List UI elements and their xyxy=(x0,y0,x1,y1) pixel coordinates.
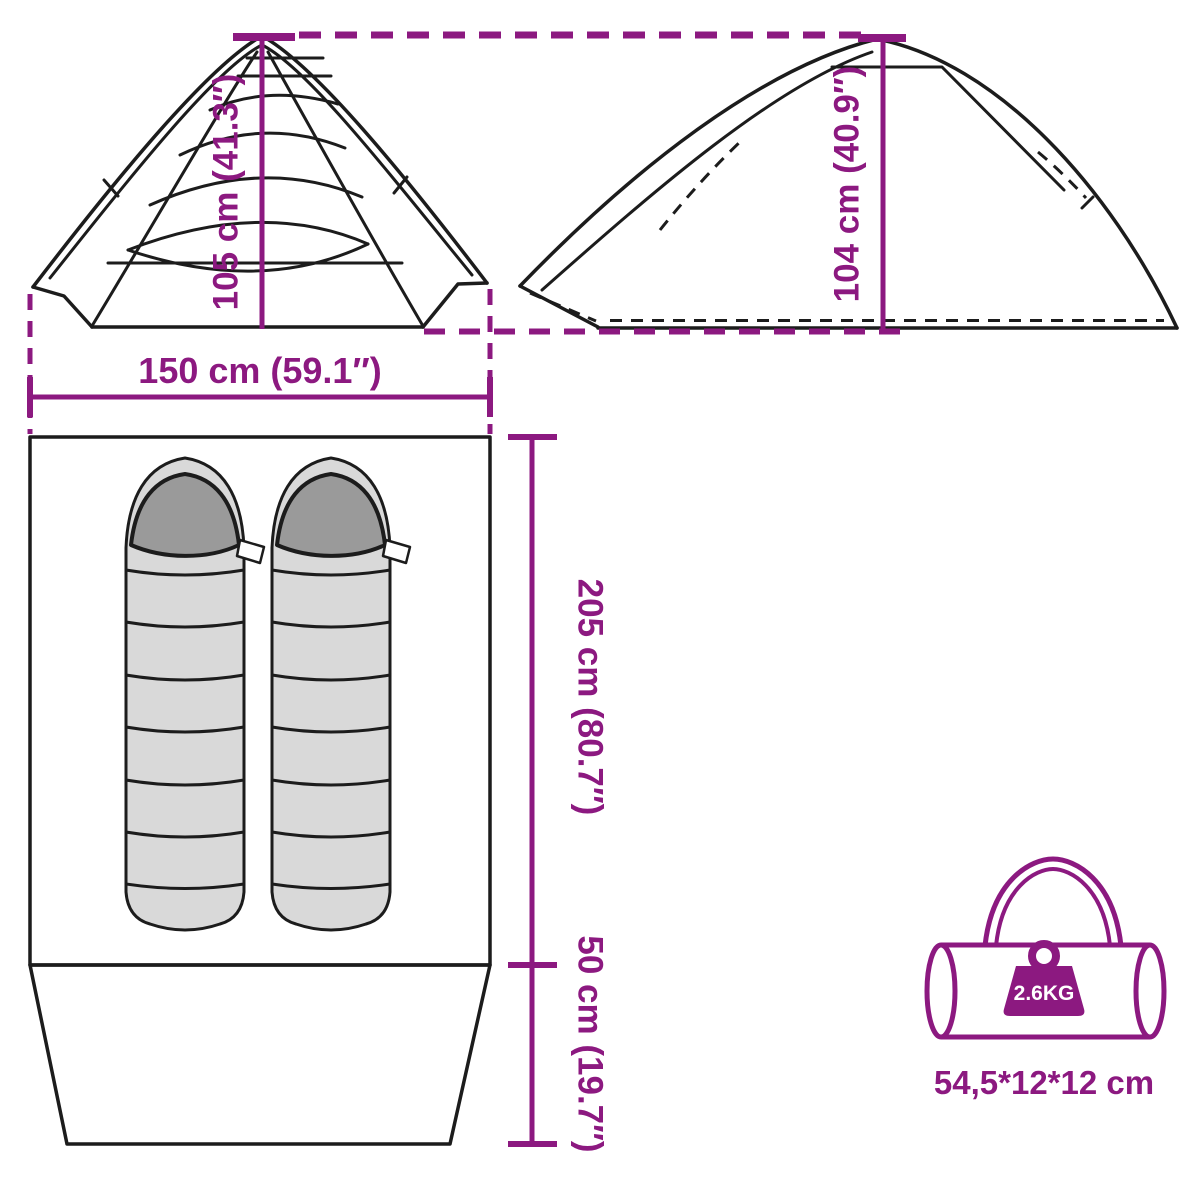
front-outer-right-edge xyxy=(262,36,487,283)
bag-handle-outer xyxy=(985,859,1121,946)
front-left-corner xyxy=(33,287,92,327)
front-door-arc-top xyxy=(128,222,368,250)
front-height-dimension-label: 105 cm (41.3″) xyxy=(207,74,246,311)
front-seam-arc xyxy=(150,178,362,205)
side-inner-profile xyxy=(542,52,872,290)
side-height-dimension-label: 104 cm (40.9″) xyxy=(828,66,867,303)
carry-bag-size-label: 54,5*12*12 cm xyxy=(934,1064,1154,1101)
front-door-arc-bottom xyxy=(128,244,368,271)
weight-icon: 2.6KG xyxy=(1004,944,1085,1016)
side-inner-tent-roof xyxy=(832,67,1064,190)
floor-vestibule-dimension-label: 50 cm (19.7″) xyxy=(571,935,610,1152)
front-height-dimension: 105 cm (41.3″) xyxy=(207,37,296,329)
front-inner-slant-right xyxy=(268,52,423,326)
sleeping-bag xyxy=(126,458,264,930)
floor-main-rectangle xyxy=(30,437,490,965)
bag-end-left xyxy=(927,945,955,1037)
floor-length-dimension-label: 205 cm (80.7″) xyxy=(571,579,610,816)
front-right-corner xyxy=(423,283,487,327)
carry-bag-icon: 2.6KG 54,5*12*12 cm xyxy=(927,859,1164,1101)
tent-dimensions-diagram: 105 cm (41.3″) 104 cm (40.9″) 150 cm (59… xyxy=(0,0,1200,1200)
tent-floor-plan xyxy=(30,437,490,1144)
side-height-dimension: 104 cm (40.9″) xyxy=(828,38,907,329)
side-right-seam-tick xyxy=(1082,197,1093,208)
floor-length-dimension: 205 cm (80.7″) 50 cm (19.7″) xyxy=(508,437,610,1153)
sleeping-bag xyxy=(272,458,410,930)
bag-end-right xyxy=(1136,945,1164,1037)
diagram-canvas: 105 cm (41.3″) 104 cm (40.9″) 150 cm (59… xyxy=(0,0,1200,1200)
weight-label: 2.6KG xyxy=(1014,982,1075,1005)
front-inner-right-edge xyxy=(264,46,472,275)
front-width-dimension-label: 150 cm (59.1″) xyxy=(138,350,381,391)
weight-ring xyxy=(1032,944,1056,968)
floor-vestibule-trapezoid xyxy=(30,965,490,1144)
